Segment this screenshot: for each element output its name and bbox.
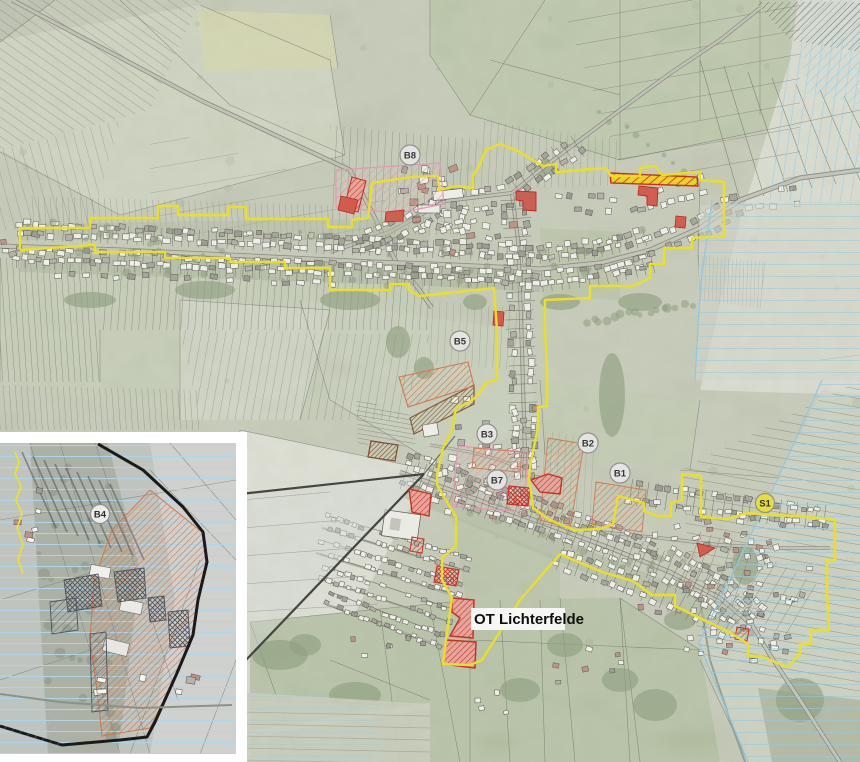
svg-text:B4: B4	[94, 510, 107, 521]
